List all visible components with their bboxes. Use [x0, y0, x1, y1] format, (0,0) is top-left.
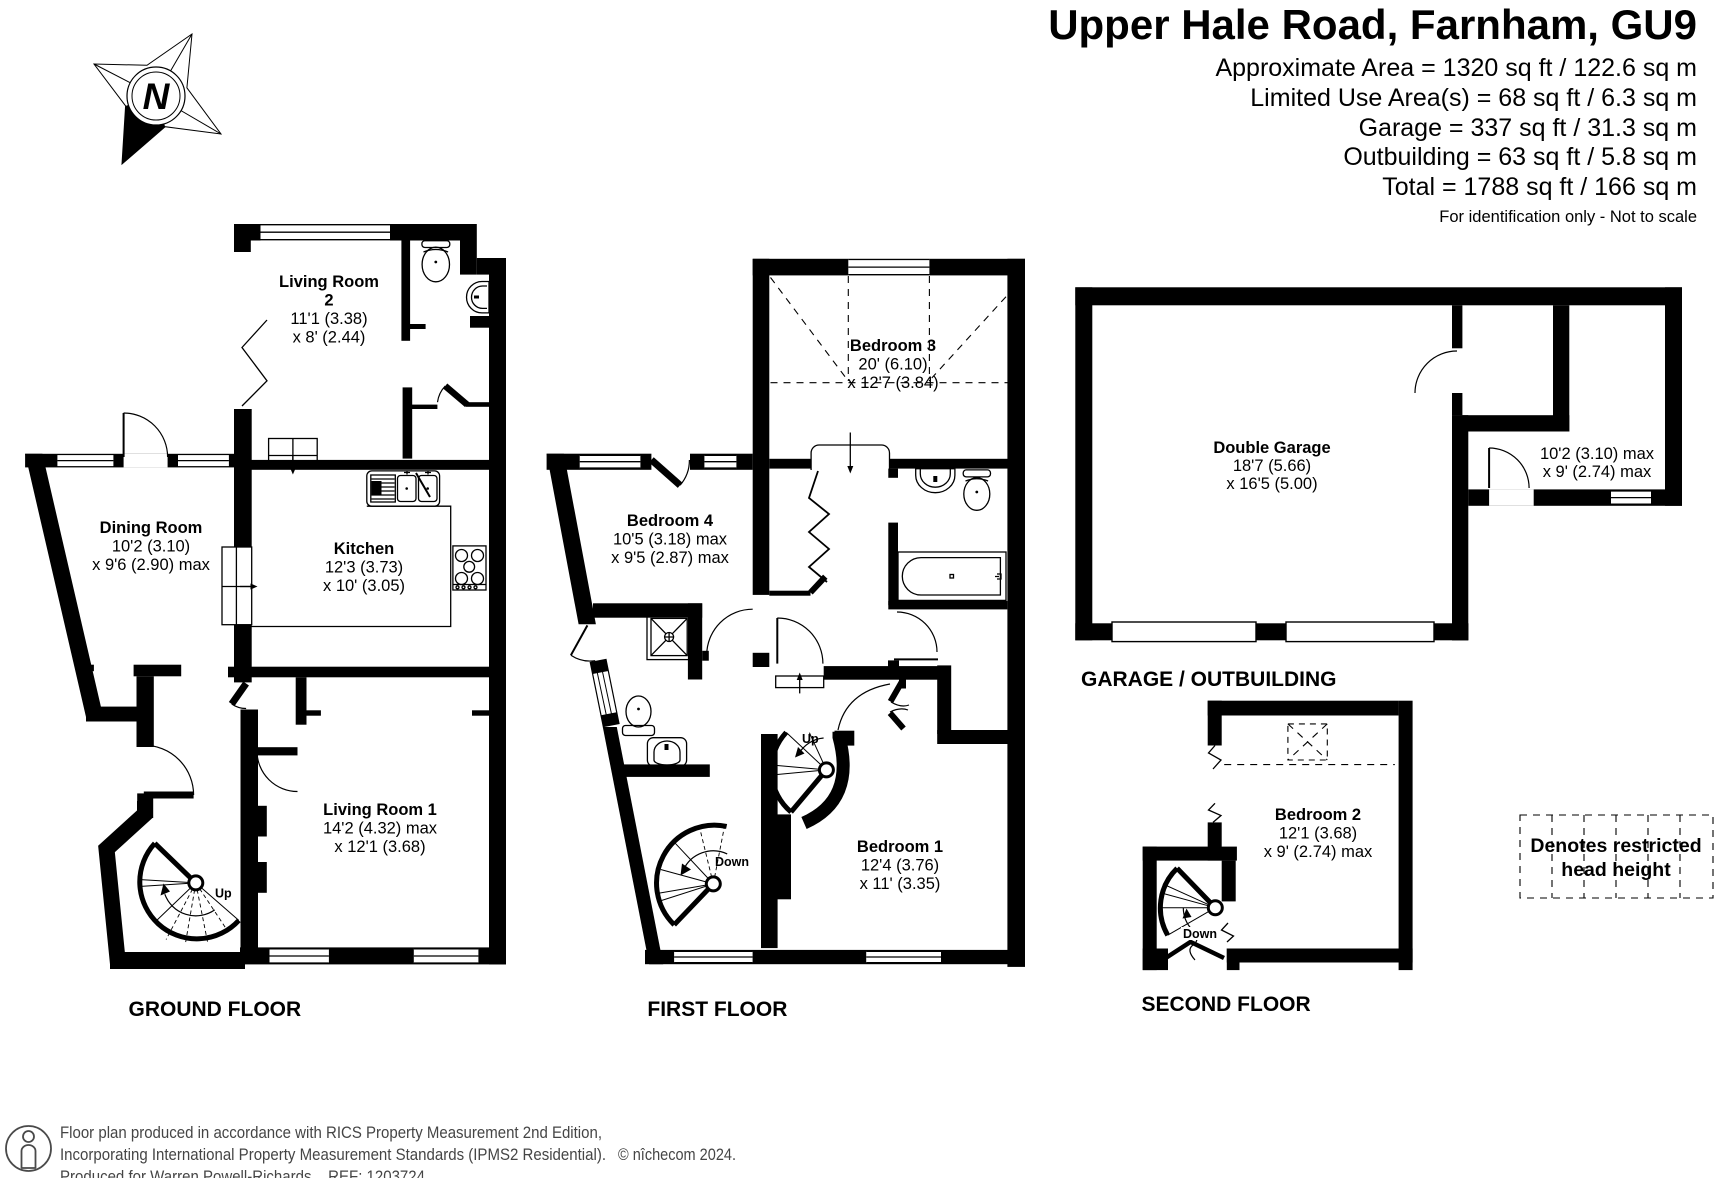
- svg-text:Outbuilding = 63 sq ft / 5.8 s: Outbuilding = 63 sq ft / 5.8 sq m: [1343, 143, 1697, 171]
- svg-text:11'1 (3.38): 11'1 (3.38): [290, 310, 367, 328]
- svg-text:Bedroom 2: Bedroom 2: [1275, 806, 1361, 824]
- svg-text:14'2 (4.32) max: 14'2 (4.32) max: [323, 819, 438, 837]
- svg-text:Bedroom 3: Bedroom 3: [850, 337, 936, 355]
- svg-text:Dining Room: Dining Room: [100, 519, 203, 537]
- svg-text:12'1 (3.68): 12'1 (3.68): [1279, 825, 1357, 843]
- svg-text:12'3 (3.73): 12'3 (3.73): [325, 558, 403, 576]
- svg-text:Incorporating International Pr: Incorporating International Property Mea…: [60, 1145, 606, 1164]
- svg-text:x 8' (2.44): x 8' (2.44): [293, 328, 366, 346]
- svg-text:Living Room: Living Room: [279, 273, 379, 291]
- svg-text:x 16'5 (5.00): x 16'5 (5.00): [1226, 475, 1317, 493]
- svg-text:© nîchecom 2024.: © nîchecom 2024.: [618, 1145, 736, 1164]
- svg-text:10'2 (3.10) max: 10'2 (3.10) max: [1540, 445, 1655, 463]
- svg-text:Up: Up: [215, 887, 232, 901]
- svg-text:Double Garage: Double Garage: [1213, 439, 1330, 457]
- svg-text:x 12'7 (3.84): x 12'7 (3.84): [847, 374, 938, 392]
- svg-text:Total = 1788 sq ft / 166 sq m: Total = 1788 sq ft / 166 sq m: [1382, 173, 1697, 201]
- svg-text:x 9'5 (2.87) max: x 9'5 (2.87) max: [611, 549, 730, 567]
- svg-text:20' (6.10): 20' (6.10): [858, 356, 927, 374]
- svg-text:10'2 (3.10): 10'2 (3.10): [112, 537, 190, 555]
- svg-text:Kitchen: Kitchen: [334, 540, 395, 558]
- svg-text:x 11' (3.35): x 11' (3.35): [860, 875, 941, 893]
- svg-text:2: 2: [324, 292, 333, 310]
- svg-text:Bedroom 4: Bedroom 4: [627, 512, 714, 530]
- svg-text:Living Room 1: Living Room 1: [323, 801, 437, 819]
- svg-text:GROUND FLOOR: GROUND FLOOR: [129, 998, 302, 1021]
- svg-text:Up: Up: [802, 732, 819, 746]
- svg-text:GARAGE / OUTBUILDING: GARAGE / OUTBUILDING: [1081, 668, 1337, 691]
- svg-text:x 9' (2.74) max: x 9' (2.74) max: [1264, 843, 1373, 861]
- svg-text:Limited Use Area(s) = 68 sq ft: Limited Use Area(s) = 68 sq ft / 6.3 sq …: [1250, 84, 1697, 112]
- svg-text:x 9'6 (2.90) max: x 9'6 (2.90) max: [92, 556, 211, 574]
- svg-text:x 10' (3.05): x 10' (3.05): [323, 577, 405, 595]
- svg-text:head height: head height: [1561, 859, 1671, 881]
- svg-text:SECOND FLOOR: SECOND FLOOR: [1142, 993, 1311, 1016]
- svg-text:Garage = 337 sq ft / 31.3 sq m: Garage = 337 sq ft / 31.3 sq m: [1359, 114, 1697, 142]
- svg-text:x 9' (2.74) max: x 9' (2.74) max: [1543, 463, 1652, 481]
- svg-text:Produced for Warren Powell-Ric: Produced for Warren Powell-Richards. REF…: [60, 1167, 425, 1178]
- svg-text:For identification only - Not: For identification only - Not to scale: [1439, 208, 1697, 226]
- svg-text:10'5 (3.18) max: 10'5 (3.18) max: [613, 531, 728, 549]
- svg-text:Approximate Area = 1320 sq ft: Approximate Area = 1320 sq ft / 122.6 sq…: [1215, 54, 1697, 82]
- svg-text:Down: Down: [1183, 927, 1217, 941]
- svg-text:Bedroom 1: Bedroom 1: [857, 838, 943, 856]
- svg-text:Upper Hale Road, Farnham, GU9: Upper Hale Road, Farnham, GU9: [1048, 1, 1697, 48]
- svg-text:Floor plan produced in accorda: Floor plan produced in accordance with R…: [60, 1123, 602, 1142]
- svg-text:FIRST FLOOR: FIRST FLOOR: [647, 998, 787, 1021]
- svg-text:x 12'1 (3.68): x 12'1 (3.68): [334, 838, 425, 856]
- svg-text:N: N: [143, 76, 171, 117]
- svg-text:Down: Down: [715, 855, 749, 869]
- svg-text:12'4 (3.76): 12'4 (3.76): [861, 857, 939, 875]
- svg-text:18'7 (5.66): 18'7 (5.66): [1233, 457, 1311, 475]
- svg-text:Denotes restricted: Denotes restricted: [1530, 835, 1701, 857]
